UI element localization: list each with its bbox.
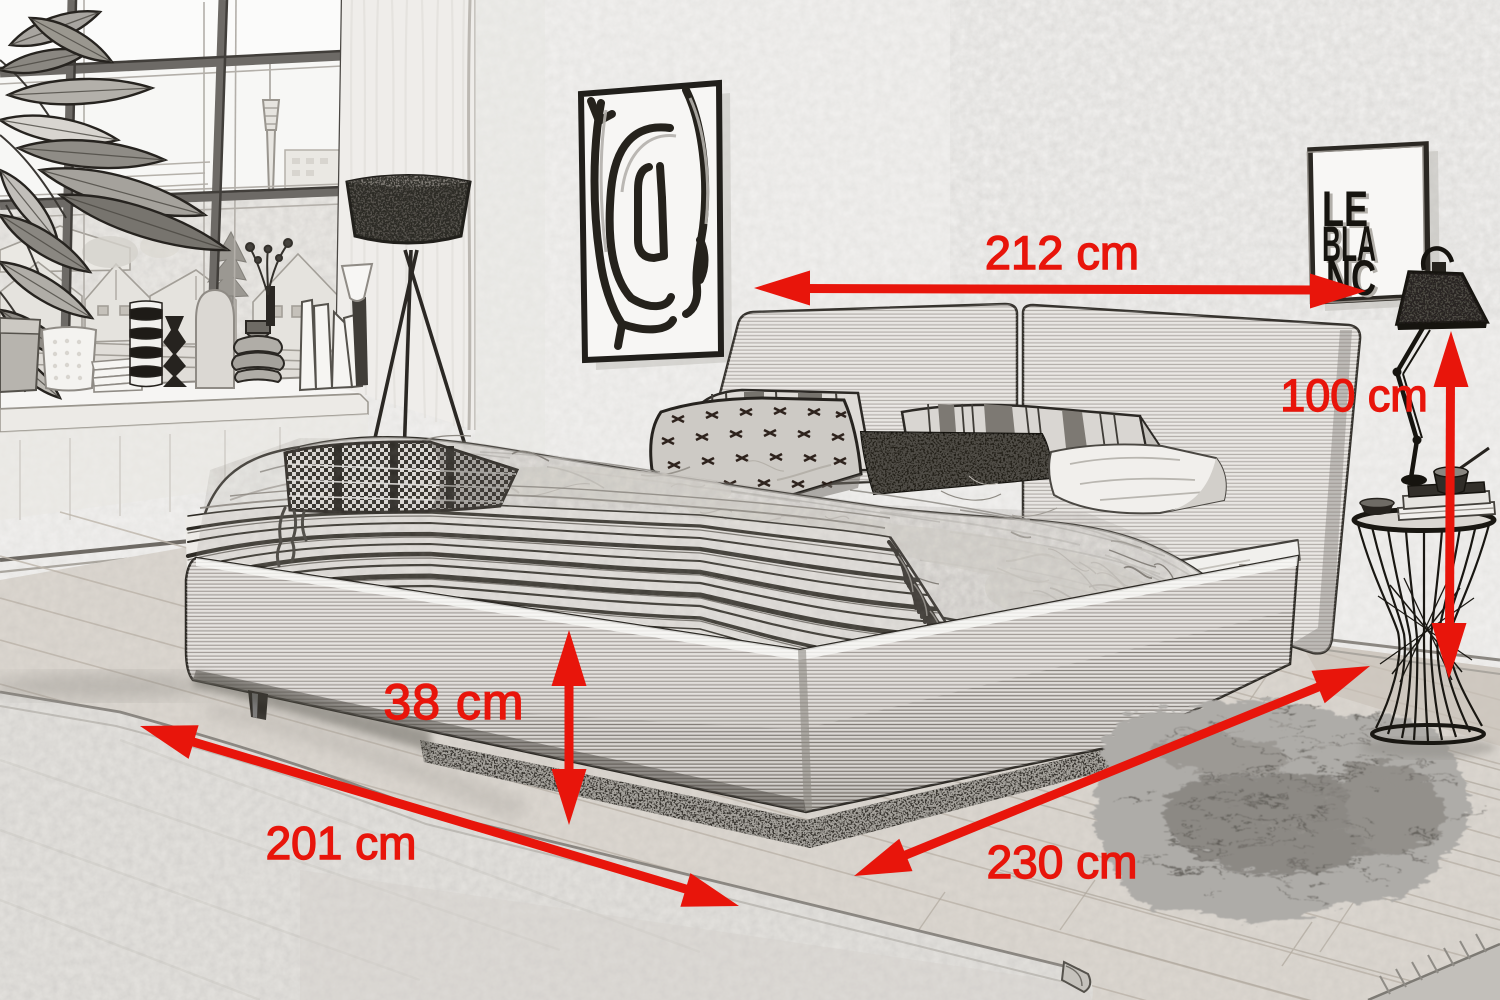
svg-text:230 cm: 230 cm bbox=[987, 836, 1138, 888]
svg-text:201 cm: 201 cm bbox=[266, 817, 417, 869]
svg-text:100 cm: 100 cm bbox=[1280, 370, 1428, 421]
svg-text:38 cm: 38 cm bbox=[383, 674, 524, 730]
svg-text:212 cm: 212 cm bbox=[985, 226, 1139, 279]
